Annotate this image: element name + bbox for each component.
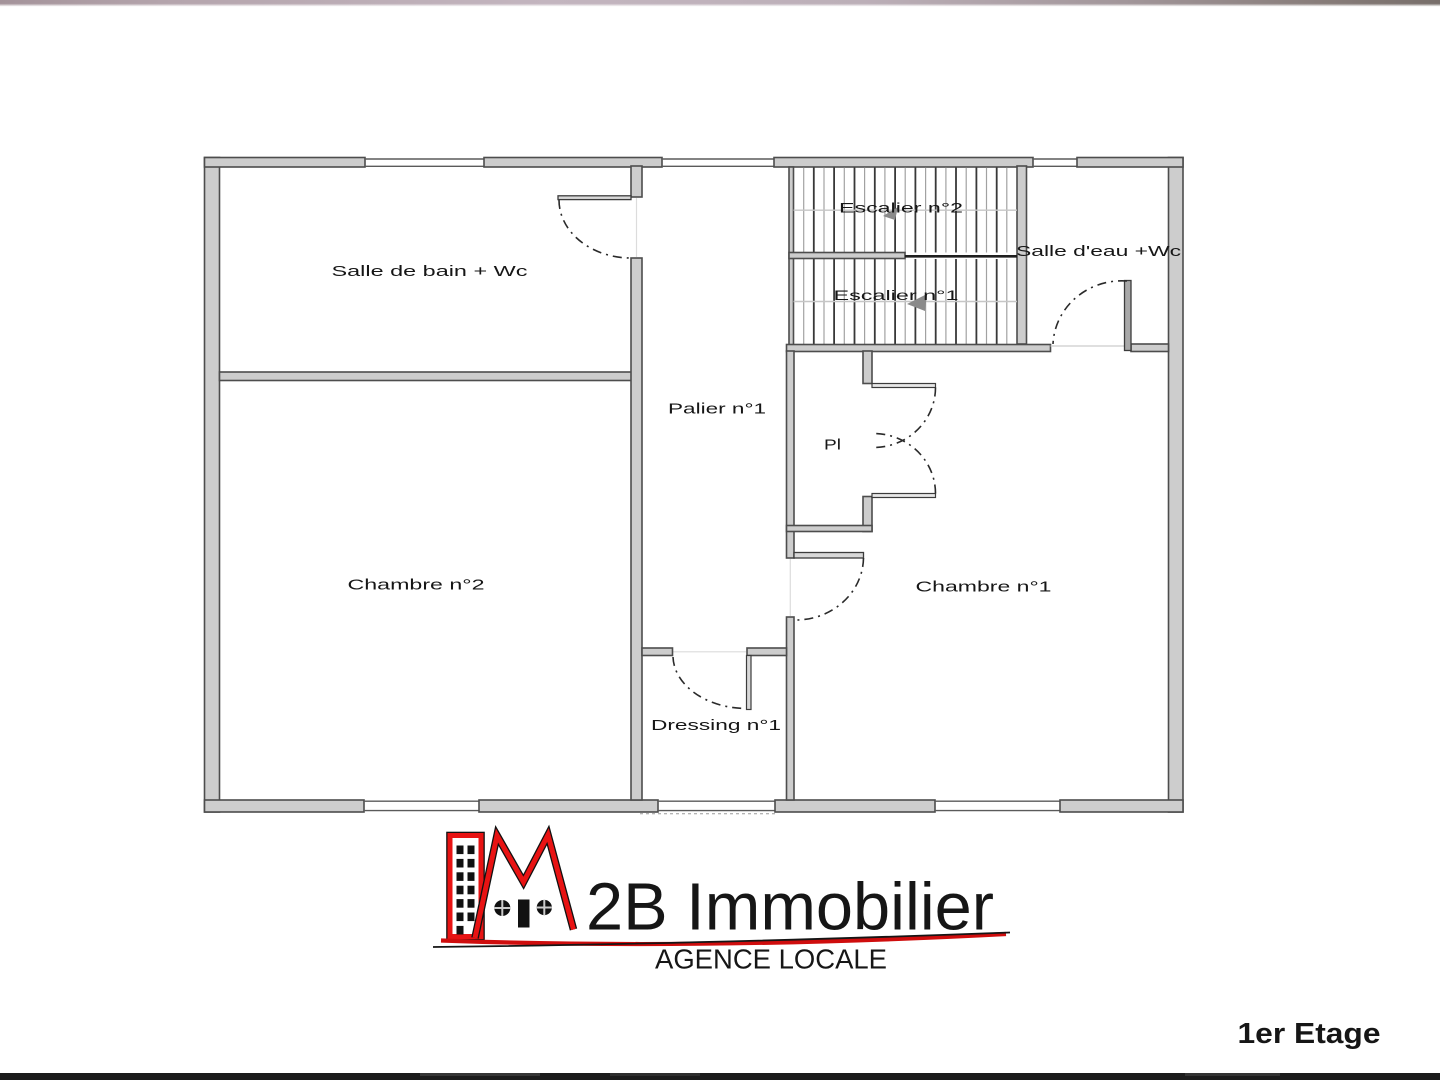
svg-text:AGENCE LOCALE: AGENCE LOCALE (655, 944, 887, 975)
svg-text:Escalier n°2: Escalier n°2 (839, 200, 963, 216)
svg-text:Salle de bain + Wc: Salle de bain + Wc (332, 263, 529, 280)
svg-text:Dressing n°1: Dressing n°1 (651, 717, 781, 734)
svg-text:2B Immobilier: 2B Immobilier (586, 870, 994, 945)
svg-text:Salle d'eau +Wc: Salle d'eau +Wc (1016, 243, 1182, 260)
svg-text:1er Etage: 1er Etage (1238, 1018, 1381, 1050)
svg-text:Chambre n°1: Chambre n°1 (916, 579, 1052, 596)
svg-text:Chambre n°2: Chambre n°2 (348, 577, 485, 594)
svg-text:Palier n°1: Palier n°1 (668, 401, 766, 418)
svg-text:Escalier n°1: Escalier n°1 (834, 287, 959, 303)
svg-text:Pl: Pl (824, 437, 841, 454)
